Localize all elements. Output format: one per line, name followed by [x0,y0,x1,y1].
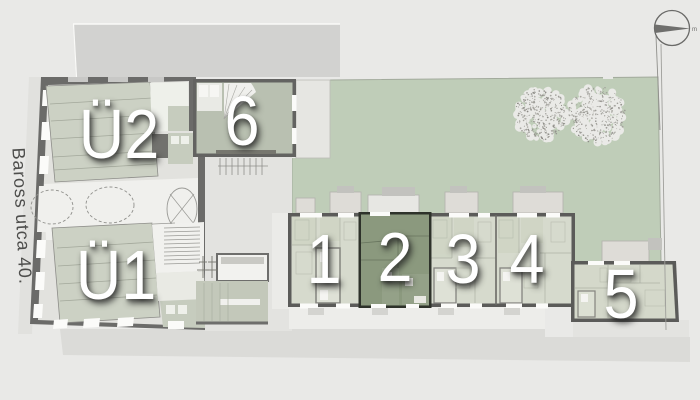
svg-text:m: m [692,27,697,33]
